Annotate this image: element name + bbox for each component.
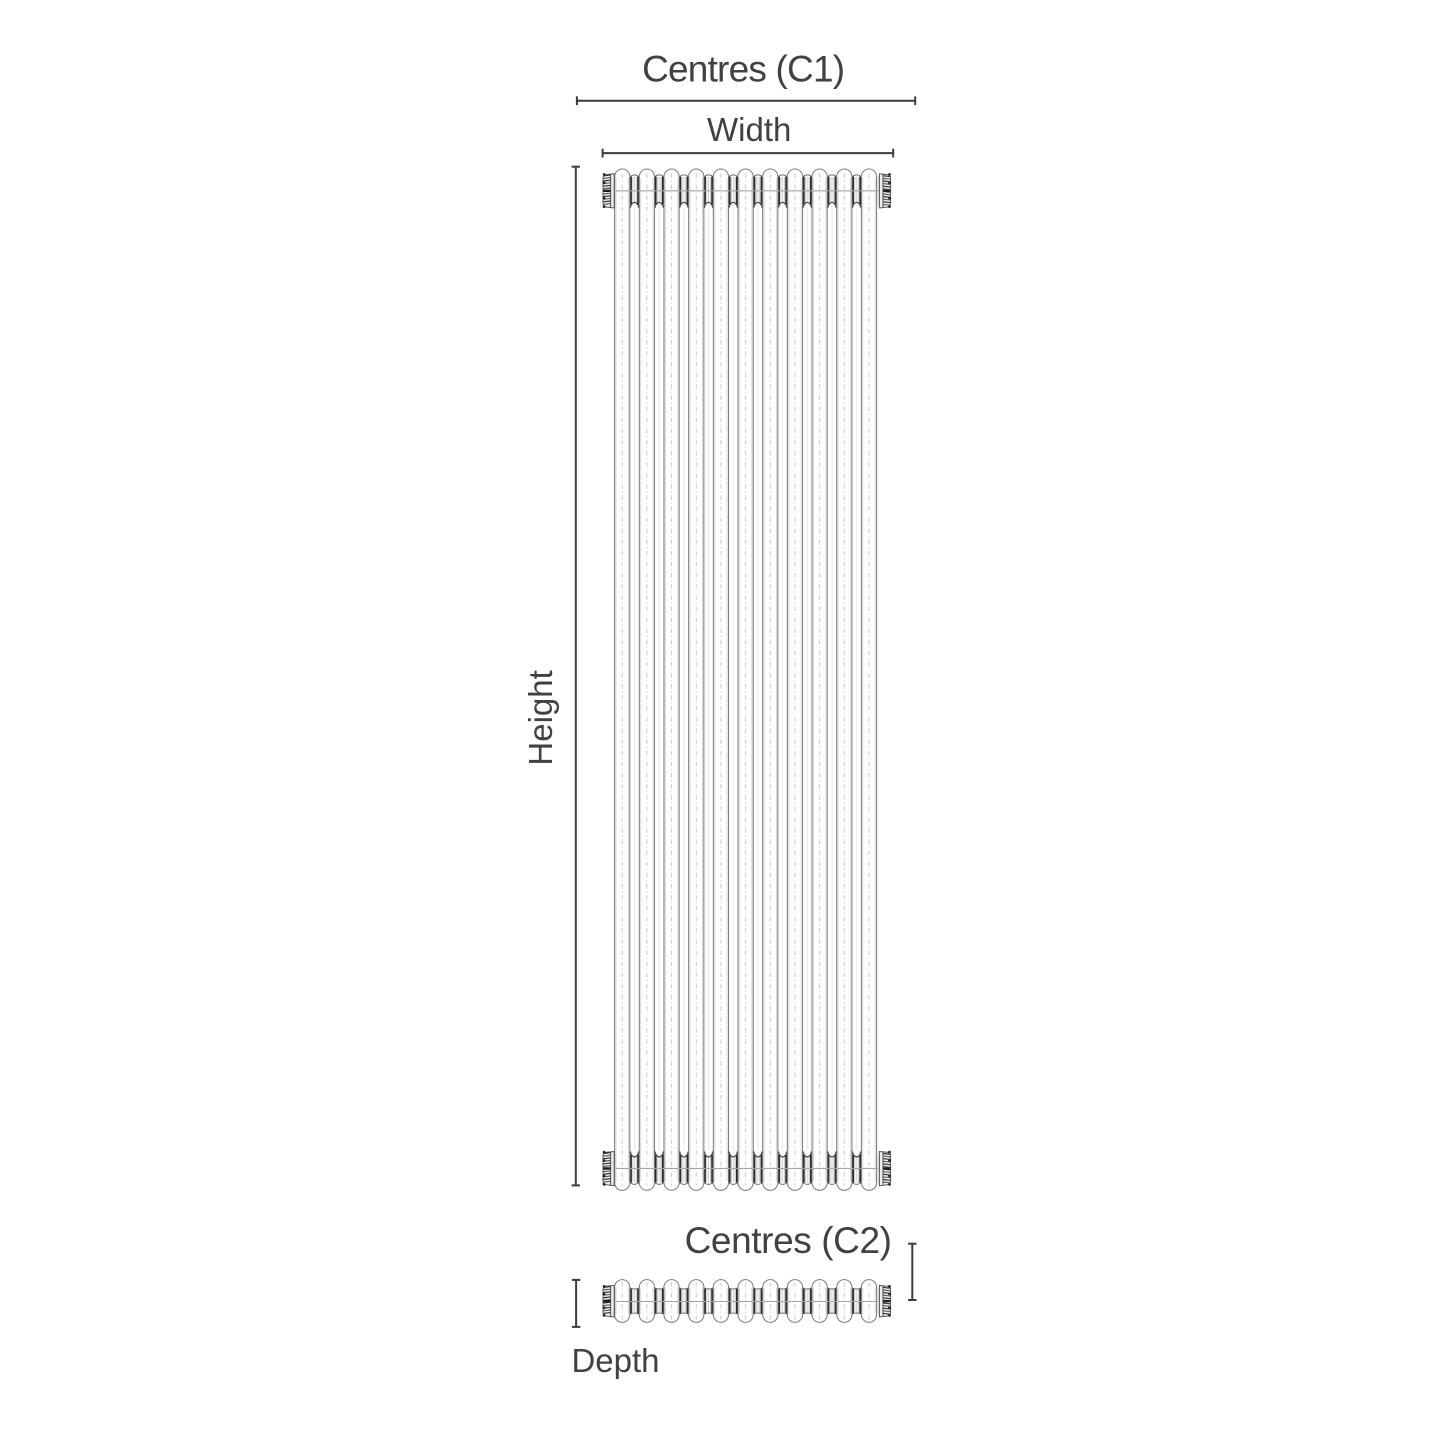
- svg-text:Depth: Depth: [571, 1342, 659, 1379]
- svg-text:Centres (C2): Centres (C2): [685, 1220, 892, 1261]
- svg-text:Width: Width: [707, 111, 791, 148]
- svg-text:Centres (C1): Centres (C1): [642, 49, 844, 90]
- svg-text:Height: Height: [522, 670, 559, 765]
